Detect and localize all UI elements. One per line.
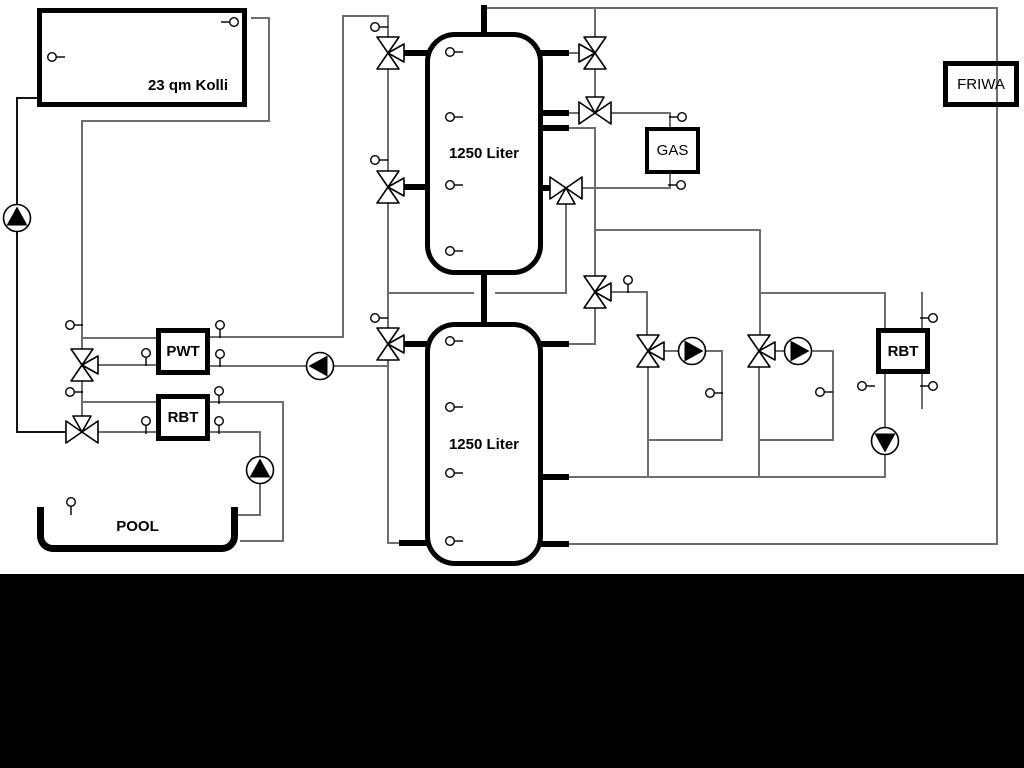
pump-icon (865, 421, 905, 461)
temperature-sensor-icon (221, 9, 247, 35)
hydraulic-schematic: 23 qm Kolli 1250 Liter 1250 Liter GAS FR… (0, 0, 1024, 768)
pump-icon (672, 331, 712, 371)
temperature-sensor-icon (669, 104, 695, 130)
temperature-sensor-icon (437, 172, 463, 198)
temperature-sensor-icon (207, 312, 233, 338)
temperature-sensor-icon (807, 379, 833, 405)
temperature-sensor-icon (437, 528, 463, 554)
temperature-sensor-icon (362, 305, 388, 331)
temperature-sensor-icon (437, 39, 463, 65)
temperature-sensor-icon (57, 312, 83, 338)
temperature-sensor-icon (207, 341, 233, 367)
pump-icon (240, 450, 280, 490)
temperature-sensor-icon (57, 379, 83, 405)
temperature-sensor-icon (920, 373, 946, 399)
temperature-sensor-icon (920, 305, 946, 331)
temperature-sensor-icon (849, 373, 875, 399)
temperature-sensor-icon (437, 328, 463, 354)
three-way-valve-icon (575, 33, 615, 73)
temperature-sensor-icon (133, 408, 159, 434)
three-way-valve-icon (368, 167, 408, 207)
bottom-black-bar (0, 574, 1024, 768)
pump-icon (300, 346, 340, 386)
pump-icon (0, 198, 37, 238)
three-way-valve-icon (546, 168, 586, 208)
temperature-sensor-icon (437, 460, 463, 486)
temperature-sensor-icon (58, 489, 84, 515)
temperature-sensor-icon (133, 340, 159, 366)
temperature-sensor-icon (437, 394, 463, 420)
temperature-sensor-icon (206, 378, 232, 404)
temperature-sensor-icon (39, 44, 65, 70)
three-way-valve-icon (628, 331, 668, 371)
temperature-sensor-icon (362, 147, 388, 173)
pump-icon (778, 331, 818, 371)
temperature-sensor-icon (206, 408, 232, 434)
three-way-valve-icon (62, 412, 102, 452)
temperature-sensor-icon (437, 104, 463, 130)
three-way-valve-icon (575, 93, 615, 133)
temperature-sensor-icon (615, 267, 641, 293)
three-way-valve-icon (575, 272, 615, 312)
temperature-sensor-icon (668, 172, 694, 198)
three-way-valve-icon (739, 331, 779, 371)
temperature-sensor-icon (697, 380, 723, 406)
temperature-sensor-icon (362, 14, 388, 40)
temperature-sensor-icon (437, 238, 463, 264)
